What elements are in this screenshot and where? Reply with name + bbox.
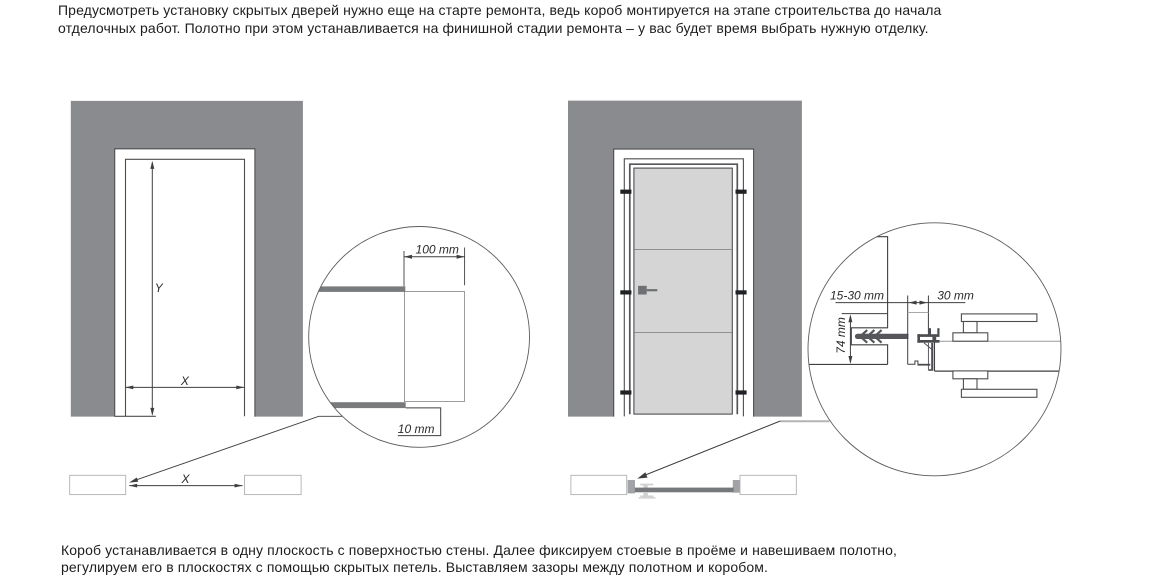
svg-text:15-30 mm: 15-30 mm [830,289,884,303]
svg-text:X: X [180,472,190,486]
svg-text:10 mm: 10 mm [398,422,435,436]
svg-text:Y: Y [155,281,164,295]
svg-text:100 mm: 100 mm [416,242,459,256]
svg-text:30 mm: 30 mm [937,289,974,303]
svg-text:74 mm: 74 mm [834,317,848,354]
svg-text:X: X [180,374,190,388]
